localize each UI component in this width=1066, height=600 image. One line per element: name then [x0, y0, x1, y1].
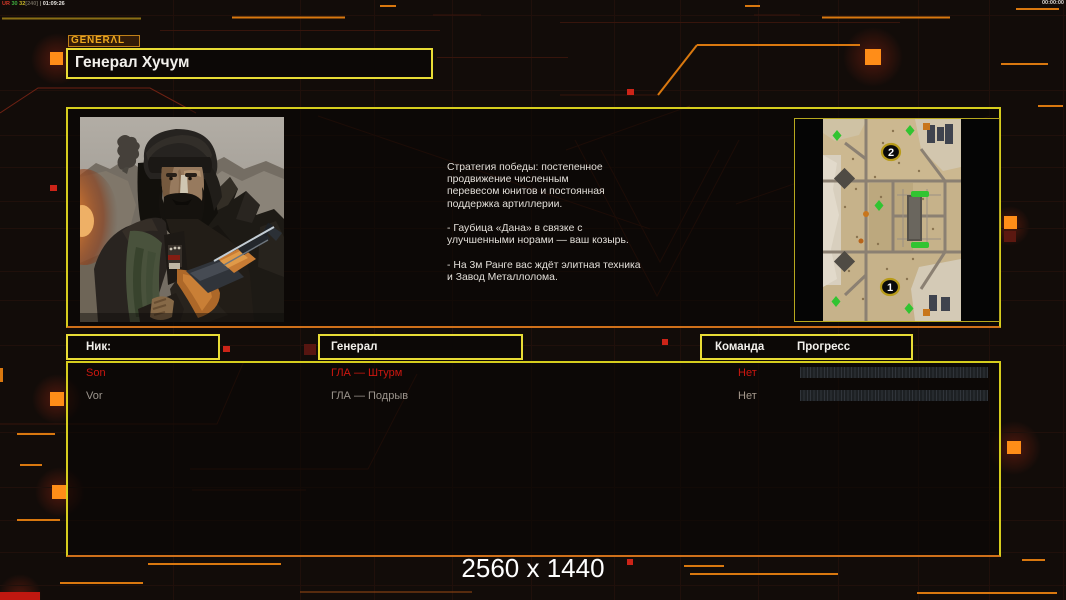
svg-text:1: 1: [887, 282, 893, 294]
svg-text:2: 2: [888, 147, 894, 159]
